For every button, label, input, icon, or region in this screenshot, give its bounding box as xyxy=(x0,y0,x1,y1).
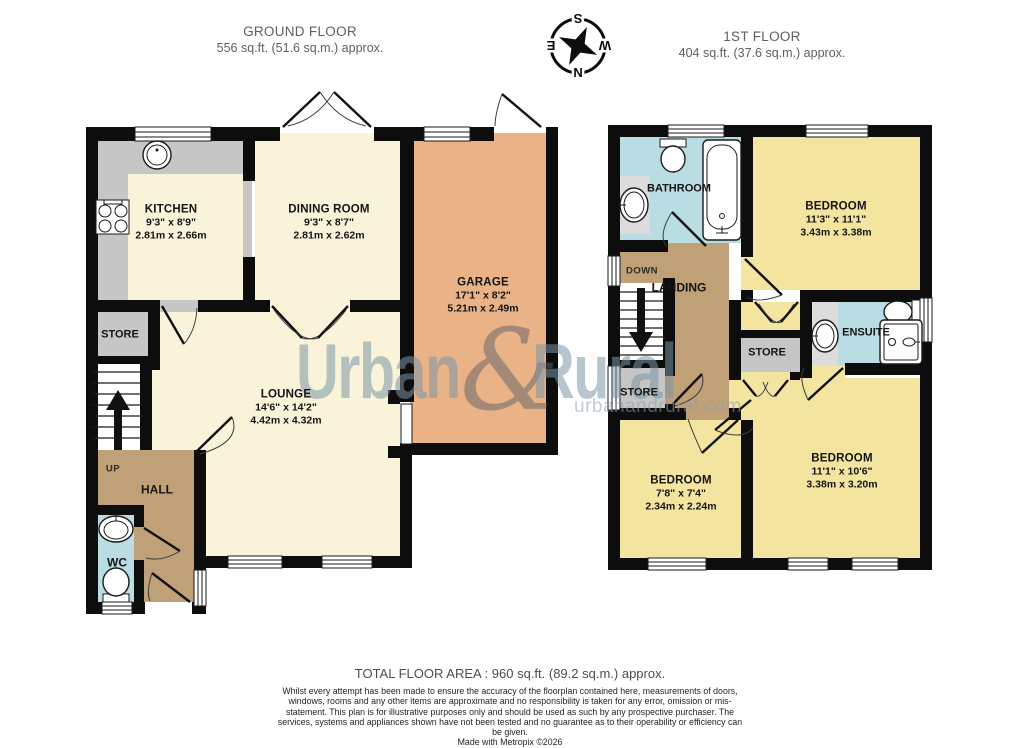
compass-icon: N E S W xyxy=(546,11,611,80)
dining-name: DINING ROOM xyxy=(288,204,369,217)
garage-label: GARAGE 17'1" x 8'2" 5.21m x 2.49m xyxy=(447,277,518,316)
up-label: UP xyxy=(106,463,120,476)
first-floor-area: 404 sq.ft. (37.6 sq.m.) approx. xyxy=(622,46,902,60)
bedroom2-imperial: 7'8" x 7'4" xyxy=(645,488,716,501)
bathroom-sink-icon xyxy=(620,188,648,222)
ensuite-sink-icon xyxy=(812,320,838,352)
total-floor-area: TOTAL FLOOR AREA : 960 sq.ft. (89.2 sq.m… xyxy=(0,666,1020,681)
floorplan-page: { "header": { "ground": { "title": "GROU… xyxy=(0,0,1020,746)
compass-n: N xyxy=(573,65,582,80)
lounge-label: LOUNGE 14'6" x 14'2" 4.42m x 4.32m xyxy=(250,389,321,428)
bedroom1-label: BEDROOM 11'3" x 11'1" 3.43m x 3.38m xyxy=(800,201,871,240)
bathroom-label: BATHROOM xyxy=(647,183,711,196)
lounge-metric: 4.42m x 4.32m xyxy=(250,415,321,428)
hall-label: HALL xyxy=(141,484,173,497)
garage-imperial: 17'1" x 8'2" xyxy=(447,290,518,303)
dining-room-label: DINING ROOM 9'3" x 8'7" 2.81m x 2.62m xyxy=(288,204,369,243)
floorplan-graphics: N E S W xyxy=(0,0,1020,746)
dining-metric: 2.81m x 2.62m xyxy=(288,230,369,243)
compass-w: W xyxy=(598,38,611,53)
garage-name: GARAGE xyxy=(447,277,518,290)
ground-floor-area: 556 sq.ft. (51.6 sq.m.) approx. xyxy=(160,41,440,55)
bedroom2-label: BEDROOM 7'8" x 7'4" 2.34m x 2.24m xyxy=(645,475,716,514)
ground-floor-title: GROUND FLOOR xyxy=(160,24,440,39)
kitchen-label: KITCHEN 9'3" x 8'9" 2.81m x 2.66m xyxy=(135,204,206,243)
footer: TOTAL FLOOR AREA : 960 sq.ft. (89.2 sq.m… xyxy=(0,666,1020,748)
compass-s: S xyxy=(573,11,582,26)
kitchen-name: KITCHEN xyxy=(135,204,206,217)
kitchen-imperial: 9'3" x 8'9" xyxy=(135,217,206,230)
wc-label: WC xyxy=(107,557,127,570)
garage-metric: 5.21m x 2.49m xyxy=(447,303,518,316)
first-store-left-label: STORE xyxy=(620,387,658,400)
bathroom-toilet-icon xyxy=(660,139,686,172)
down-label: DOWN xyxy=(626,265,658,278)
ensuite-label: ENSUITE xyxy=(842,327,890,340)
garage-door-panel xyxy=(401,404,412,444)
landing-label: LANDING xyxy=(652,282,707,295)
bedroom3-imperial: 11'1" x 10'6" xyxy=(806,466,877,479)
bedroom3-metric: 3.38m x 3.20m xyxy=(806,479,877,492)
disclaimer-text: Whilst every attempt has been made to en… xyxy=(274,686,746,737)
hob-icon xyxy=(96,200,129,234)
kitchen-metric: 2.81m x 2.66m xyxy=(135,230,206,243)
bedroom3-label: BEDROOM 11'1" x 10'6" 3.38m x 3.20m xyxy=(806,453,877,492)
bedroom2-metric: 2.34m x 2.24m xyxy=(645,501,716,514)
bedroom1-imperial: 11'3" x 11'1" xyxy=(800,214,871,227)
first-store-mid-label: STORE xyxy=(748,347,786,360)
first-floor-header: 1ST FLOOR 404 sq.ft. (37.6 sq.m.) approx… xyxy=(622,29,902,60)
ground-floor-header: GROUND FLOOR 556 sq.ft. (51.6 sq.m.) app… xyxy=(160,24,440,55)
lounge-imperial: 14'6" x 14'2" xyxy=(250,402,321,415)
bedroom1-name: BEDROOM xyxy=(800,201,871,214)
first-floor-title: 1ST FLOOR xyxy=(622,29,902,44)
bedroom2-name: BEDROOM xyxy=(645,475,716,488)
ground-store-label: STORE xyxy=(101,329,139,342)
compass-e: E xyxy=(546,38,555,53)
dining-imperial: 9'3" x 8'7" xyxy=(288,217,369,230)
credit-text: Made with Metropix ©2026 xyxy=(0,737,1020,747)
lounge-name: LOUNGE xyxy=(250,389,321,402)
bedroom1-metric: 3.43m x 3.38m xyxy=(800,227,871,240)
bedroom3-name: BEDROOM xyxy=(806,453,877,466)
wc-toilet-icon xyxy=(103,568,129,602)
ground-floor-plan xyxy=(86,92,558,614)
